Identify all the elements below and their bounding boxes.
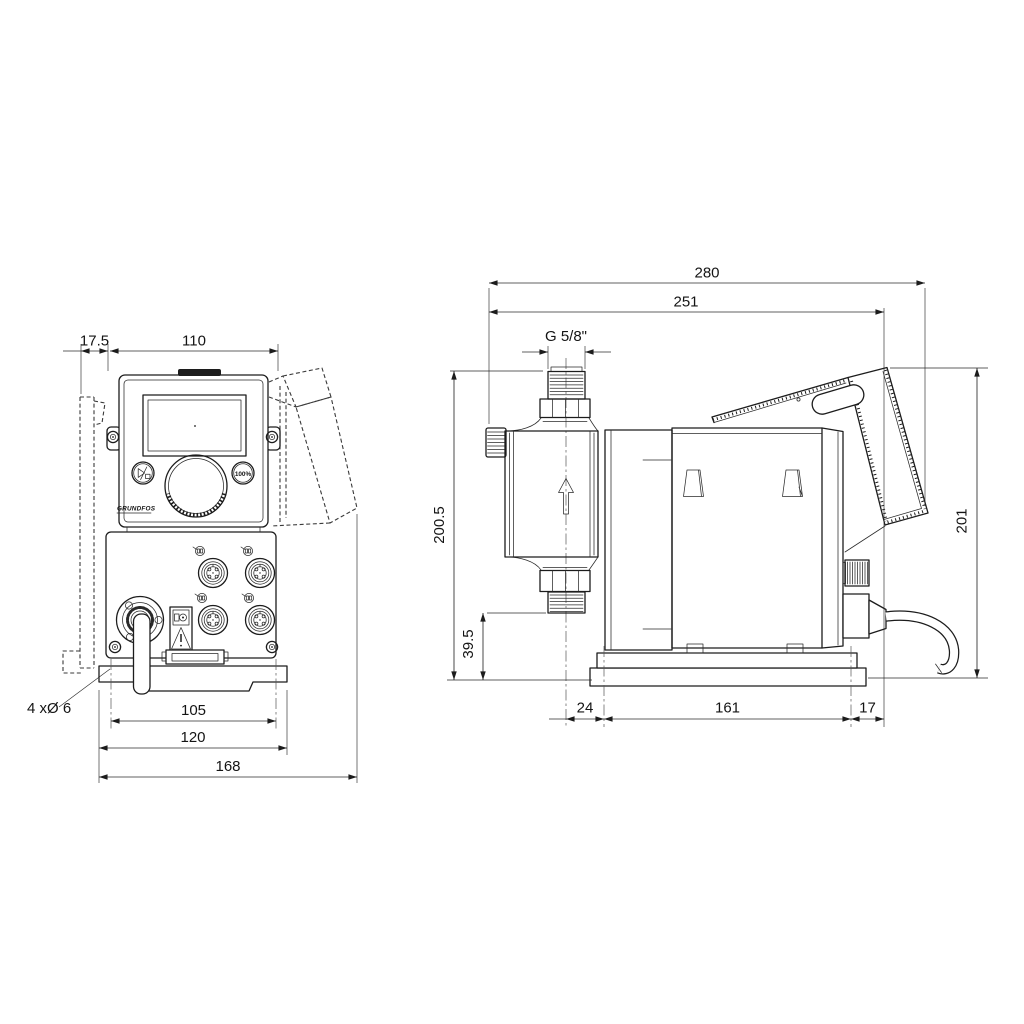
m12-connector[interactable] — [199, 559, 228, 588]
m12-connector[interactable] — [246, 606, 275, 635]
svg-text:GRUNDFOS: GRUNDFOS — [117, 506, 156, 513]
dimensional-drawing-page: 100% GRUNDFOS — [0, 0, 1024, 1024]
cable-gland — [843, 594, 954, 673]
panel-top-tab — [178, 369, 221, 376]
hood-hidden-outline — [269, 368, 357, 526]
outlet-thread — [548, 372, 585, 400]
head-adapter — [605, 430, 672, 650]
dim-panel-height: 201 — [954, 508, 971, 533]
connector-marker-icon — [241, 546, 253, 555]
priming-knob[interactable] — [486, 428, 506, 457]
front-view: 100% GRUNDFOS — [27, 333, 357, 784]
dim-overall-height: 200.5 — [431, 506, 448, 544]
front-base-plate — [99, 666, 287, 691]
head-body — [505, 431, 598, 557]
motor-housing — [672, 428, 843, 648]
connector-marker-icon — [193, 546, 205, 555]
dim-mounting-holes: 4 xØ 6 — [27, 700, 71, 717]
dim-head-to-plate: 24 — [577, 700, 594, 717]
side-view: 280 251 G 5/8" 200.5 39.5 201 24 161 17 — [431, 265, 988, 728]
dim-overall-width: 168 — [215, 758, 240, 775]
dim-wall-clearance: 17.5 — [80, 333, 109, 350]
dim-body-width: 110 — [182, 333, 206, 350]
wall-plate-hidden-outline — [63, 397, 105, 673]
pump-dimensional-drawing: 100% GRUNDFOS — [0, 0, 1024, 1024]
connector-marker-icon — [242, 593, 254, 602]
m12-connectors — [193, 546, 275, 634]
mains-cable — [134, 614, 151, 694]
inlet-thread — [548, 592, 585, 613]
dim-plate-length: 161 — [715, 700, 740, 717]
union-nut-top — [540, 399, 590, 418]
dim-connection-thread: G 5/8" — [545, 328, 587, 345]
mains-cable-side — [886, 616, 954, 670]
dim-connection-height: 39.5 — [460, 629, 477, 658]
screw-icon — [109, 641, 120, 652]
dim-plate-to-gland: 17 — [859, 700, 876, 717]
control-cube-side — [712, 368, 928, 553]
dim-depth-to-gland: 251 — [673, 294, 698, 311]
housing-clip — [684, 470, 704, 497]
warning-label — [170, 607, 192, 653]
housing-clip — [783, 470, 803, 497]
rear-connection — [843, 560, 869, 586]
base-latch — [162, 650, 228, 664]
dim-plate-width: 120 — [180, 729, 205, 746]
connector-marker-icon — [195, 593, 207, 602]
grundfos-logo: GRUNDFOS — [117, 506, 156, 514]
m12-connector[interactable] — [246, 559, 275, 588]
dim-overall-depth: 280 — [694, 265, 719, 282]
capacity-button-label: 100% — [235, 471, 252, 478]
dim-hole-spacing: 105 — [181, 702, 206, 719]
union-nut-bottom — [540, 571, 590, 592]
dosing-head — [486, 367, 598, 613]
m12-connector[interactable] — [199, 606, 228, 635]
control-panel: 100% GRUNDFOS — [117, 369, 268, 527]
